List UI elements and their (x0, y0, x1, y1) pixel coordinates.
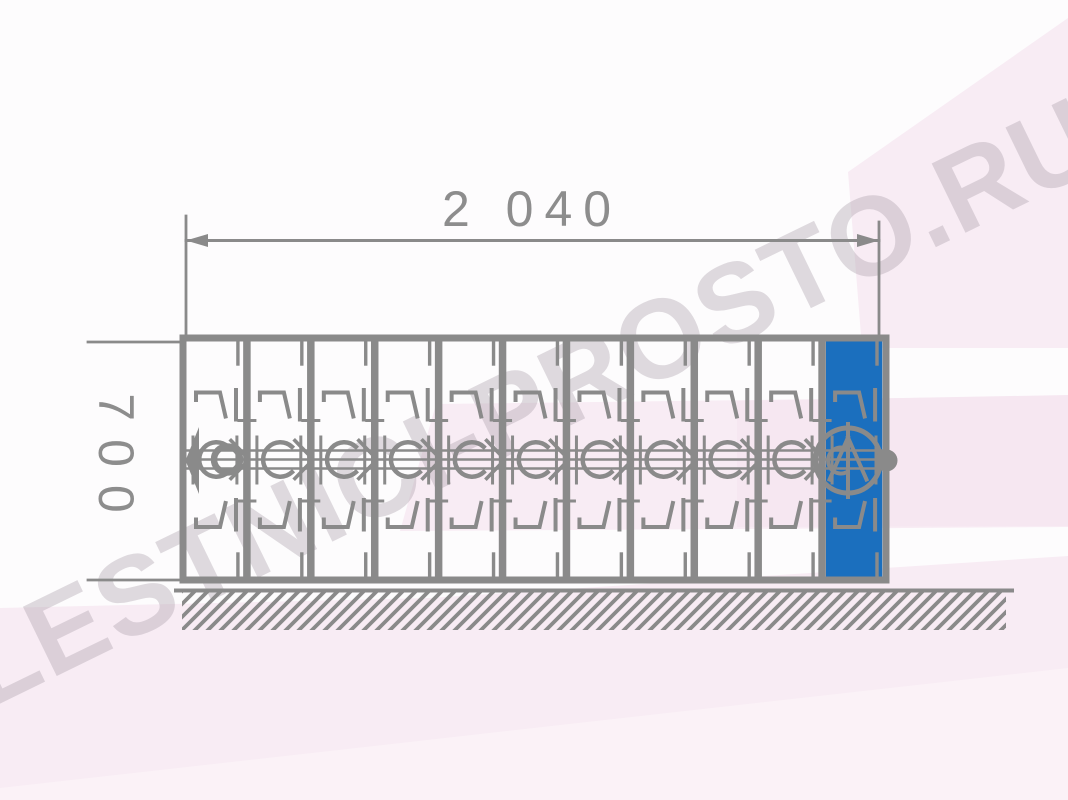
hatch-line (335, 588, 380, 633)
hatch-line (673, 588, 718, 633)
hatch-line (868, 588, 913, 633)
hatch-line (829, 588, 874, 633)
height-dimension-label: 700 (88, 393, 144, 530)
hatch-line (738, 588, 783, 633)
hatch-line (621, 588, 666, 633)
hatch-line (712, 588, 757, 633)
fold-arm-bottom (516, 503, 546, 527)
fold-arm-bottom (260, 503, 290, 527)
fold-arm-bottom (324, 503, 354, 527)
dim-arrow-left (186, 234, 208, 247)
hatch-line (543, 588, 588, 633)
hatch-line (933, 588, 978, 633)
fold-arm-bottom (643, 503, 673, 527)
hatch-line (595, 588, 640, 633)
diagram-geometry (88, 216, 1068, 633)
hatch-line (465, 588, 510, 633)
hatch-line (413, 588, 458, 633)
hatch-line (1024, 588, 1068, 633)
hatch-line (686, 588, 731, 633)
hatch-line (491, 588, 536, 633)
hatch-line (855, 588, 900, 633)
hatch-line (192, 588, 237, 633)
hatch-line (907, 588, 952, 633)
fold-arm-bottom (707, 503, 737, 527)
fold-arm-top (579, 393, 609, 417)
hatch-line (348, 588, 393, 633)
hatch-line (803, 588, 848, 633)
hatch-line (166, 588, 211, 633)
hatch-line (140, 588, 185, 633)
hatch-line (569, 588, 614, 633)
hatch-line (504, 588, 549, 633)
hatch-line (530, 588, 575, 633)
ground-hatching (140, 588, 1068, 633)
hatch-line (790, 588, 835, 633)
hatch-line (764, 588, 809, 633)
hatch-line (283, 588, 328, 633)
hatch-line (179, 588, 224, 633)
hatch-line (842, 588, 887, 633)
hatch-line (1037, 588, 1068, 633)
hatch-line (946, 588, 991, 633)
hatch-line (517, 588, 562, 633)
fold-arm-bottom (388, 503, 418, 527)
hatch-line (985, 588, 1030, 633)
hatch-line (322, 588, 367, 633)
hatch-line (660, 588, 705, 633)
width-dimension-label: 2 040 (442, 181, 622, 237)
hatch-line (257, 588, 302, 633)
hatch-line (478, 588, 523, 633)
hatch-line (426, 588, 471, 633)
fold-arm-top (196, 393, 226, 417)
hatch-line (777, 588, 822, 633)
hatch-line (751, 588, 796, 633)
fold-arm-bottom (579, 503, 609, 527)
fold-arm-top (643, 393, 673, 417)
hatch-line (816, 588, 861, 633)
hatch-line (153, 588, 198, 633)
dim-arrow-right (857, 234, 879, 247)
hatch-line (556, 588, 601, 633)
hatch-line (894, 588, 939, 633)
right-end-ball (876, 450, 898, 472)
hatch-line (582, 588, 627, 633)
hatch-line (959, 588, 1004, 633)
fold-arm-top (771, 393, 801, 417)
fold-arm-top (324, 393, 354, 417)
hatch-line (374, 588, 419, 633)
hatch-line (231, 588, 276, 633)
fold-arm-bottom (771, 503, 801, 527)
fold-arm-top (707, 393, 737, 417)
hatch-line (881, 588, 926, 633)
hatch-line (270, 588, 315, 633)
hatch-line (439, 588, 484, 633)
fold-arm-bottom (196, 503, 226, 527)
hatch-line (309, 588, 354, 633)
hatch-line (647, 588, 692, 633)
fold-arm-top (388, 393, 418, 417)
ladder-diagram: 2 040 700 (0, 0, 1068, 800)
hatch-line (725, 588, 770, 633)
fold-arm-top (516, 393, 546, 417)
hatch-line (205, 588, 250, 633)
hatch-line (972, 588, 1017, 633)
hatch-line (452, 588, 497, 633)
fold-arm-top (452, 393, 482, 417)
hatch-line (244, 588, 289, 633)
drawing-canvas: LESTNICI-PROSTO.RU 2 040 700 (0, 0, 1068, 800)
hatch-line (699, 588, 744, 633)
hatch-line (608, 588, 653, 633)
fold-arm-bottom (452, 503, 482, 527)
hatch-line (634, 588, 679, 633)
hatch-line (998, 588, 1043, 633)
hatch-line (361, 588, 406, 633)
hatch-line (400, 588, 445, 633)
hatch-line (1011, 588, 1056, 633)
hatch-line (296, 588, 341, 633)
fold-arm-top (260, 393, 290, 417)
hatch-line (920, 588, 965, 633)
hatch-line (387, 588, 432, 633)
hatch-line (218, 588, 263, 633)
